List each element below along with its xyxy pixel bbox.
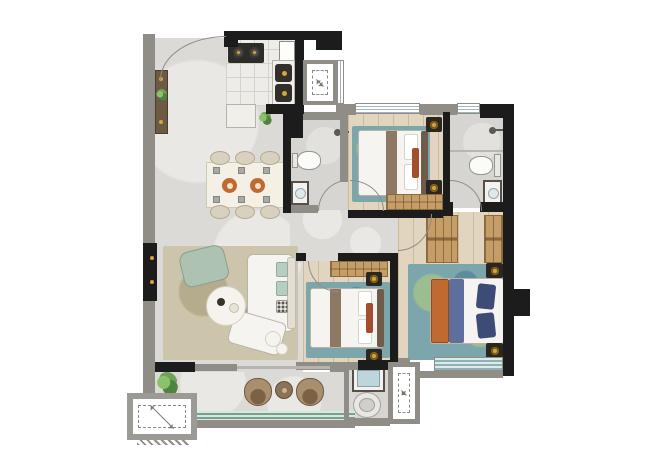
coffee-table-decor xyxy=(217,298,225,306)
sofa-back xyxy=(287,257,296,329)
place-setting xyxy=(213,196,220,203)
wall xyxy=(143,34,155,372)
wall xyxy=(195,364,237,371)
wall-structural xyxy=(224,31,238,47)
sofa-cushion xyxy=(276,281,288,296)
toilet-tank xyxy=(292,153,298,168)
toilet xyxy=(469,156,493,175)
window xyxy=(457,103,480,114)
toilet xyxy=(297,151,321,170)
coffee-table xyxy=(206,286,246,326)
entry-plant xyxy=(156,89,167,102)
accent-pillow xyxy=(366,303,373,333)
nightstand-lamp xyxy=(366,272,382,286)
ac-symbol xyxy=(138,405,186,428)
pillow-navy xyxy=(476,312,497,339)
ac-symbol xyxy=(398,373,410,413)
shower-icon xyxy=(489,127,496,134)
wardrobe xyxy=(386,194,443,210)
ac-arrow-icon xyxy=(316,79,324,87)
wall-structural xyxy=(155,362,195,372)
bed-blanket-blue xyxy=(449,279,464,343)
wall xyxy=(344,362,349,420)
balcony-slider xyxy=(237,366,330,369)
wardrobe xyxy=(484,215,503,263)
bed-bench-orange xyxy=(431,279,449,343)
ac-symbol xyxy=(312,70,328,95)
nightstand-lamp xyxy=(486,343,503,358)
washing-machine xyxy=(353,392,381,418)
place-setting xyxy=(238,196,245,203)
nightstand-lamp xyxy=(426,180,442,195)
bed-runner xyxy=(330,289,341,347)
bay-window xyxy=(434,357,503,371)
wall xyxy=(340,112,348,182)
dining-chair xyxy=(235,151,255,165)
wall-structural xyxy=(316,31,342,50)
sofa-cushion-patterned xyxy=(276,300,288,313)
dining-chair xyxy=(210,205,230,219)
accent-pillow xyxy=(412,148,419,178)
burner-icon xyxy=(249,47,260,58)
wall-sconce xyxy=(150,280,154,284)
wall xyxy=(336,104,356,115)
wall-structural xyxy=(283,112,291,213)
wall-structural xyxy=(338,253,398,261)
ac-platform xyxy=(303,60,337,105)
dining-chair xyxy=(210,151,230,165)
nightstand-lamp xyxy=(486,263,503,278)
balcony-table xyxy=(275,381,293,399)
nightstand-lamp xyxy=(426,117,442,132)
kitchen-plant xyxy=(258,112,272,126)
wall xyxy=(420,104,457,115)
platform-hatch xyxy=(137,440,189,445)
dining-chair xyxy=(260,151,280,165)
place-setting xyxy=(213,167,220,174)
bed-runner xyxy=(386,131,397,195)
kitchen-sink xyxy=(275,84,292,102)
kitchen-sink xyxy=(275,64,292,82)
wall-structural xyxy=(503,110,514,376)
ac-arrow-icon xyxy=(150,404,174,428)
wall-structural xyxy=(390,253,398,365)
window xyxy=(355,103,420,114)
wicker-chair xyxy=(244,378,272,406)
wall-structural xyxy=(296,253,306,261)
serving-plate xyxy=(250,178,265,193)
ac-platform xyxy=(388,362,420,424)
headboard xyxy=(377,289,384,347)
burner-icon xyxy=(233,47,244,58)
toilet-tank xyxy=(494,154,501,177)
washbasin xyxy=(291,181,309,205)
floor-plan xyxy=(0,0,651,460)
wall xyxy=(290,205,318,213)
wicker-chair xyxy=(296,378,324,406)
place-setting xyxy=(263,167,270,174)
ac-platform xyxy=(127,393,197,440)
wall-structural xyxy=(443,112,450,204)
place-setting xyxy=(238,167,245,174)
place-setting xyxy=(263,196,270,203)
wall xyxy=(345,418,390,426)
fridge xyxy=(279,41,295,62)
sofa-cushion xyxy=(276,262,288,277)
wall-structural xyxy=(480,202,503,212)
wall-sconce xyxy=(150,256,154,260)
serving-plate xyxy=(222,178,237,193)
dining-chair xyxy=(235,205,255,219)
wall-pillar xyxy=(514,289,530,316)
kitchen-counter-bottom xyxy=(226,104,256,128)
shower-partition xyxy=(450,150,503,152)
coffee-table-plate xyxy=(229,303,239,313)
window xyxy=(337,60,344,104)
wall-structural xyxy=(143,243,157,301)
pillow-navy xyxy=(476,283,497,310)
console-decor xyxy=(159,120,163,124)
ac-arrow-icon xyxy=(401,390,407,396)
dining-chair xyxy=(260,205,280,219)
side-table-small xyxy=(276,343,288,355)
wall-structural xyxy=(358,360,392,370)
